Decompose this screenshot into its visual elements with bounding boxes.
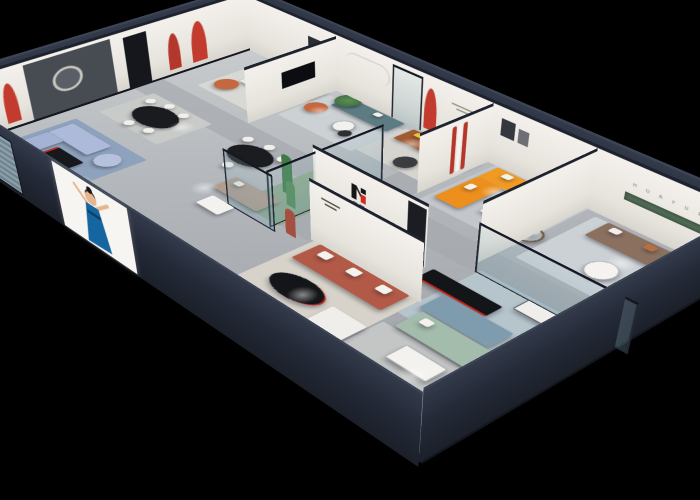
deco-curved-lines: [346, 49, 391, 89]
red-arch-niche-3: [0, 81, 22, 124]
red-arch-niche-2: [166, 32, 182, 71]
orange-room-art-2: [517, 129, 529, 148]
wall-tv: [281, 61, 315, 89]
floor-plan: H U A Y U E: [0, 49, 700, 455]
camera-stage: H U A Y U E: [0, 0, 700, 500]
red-arch-niche-1: [189, 19, 208, 63]
orange-room-art-1: [500, 118, 516, 141]
render-canvas: H U A Y U E: [0, 0, 700, 500]
doorway-dark: [123, 31, 153, 88]
